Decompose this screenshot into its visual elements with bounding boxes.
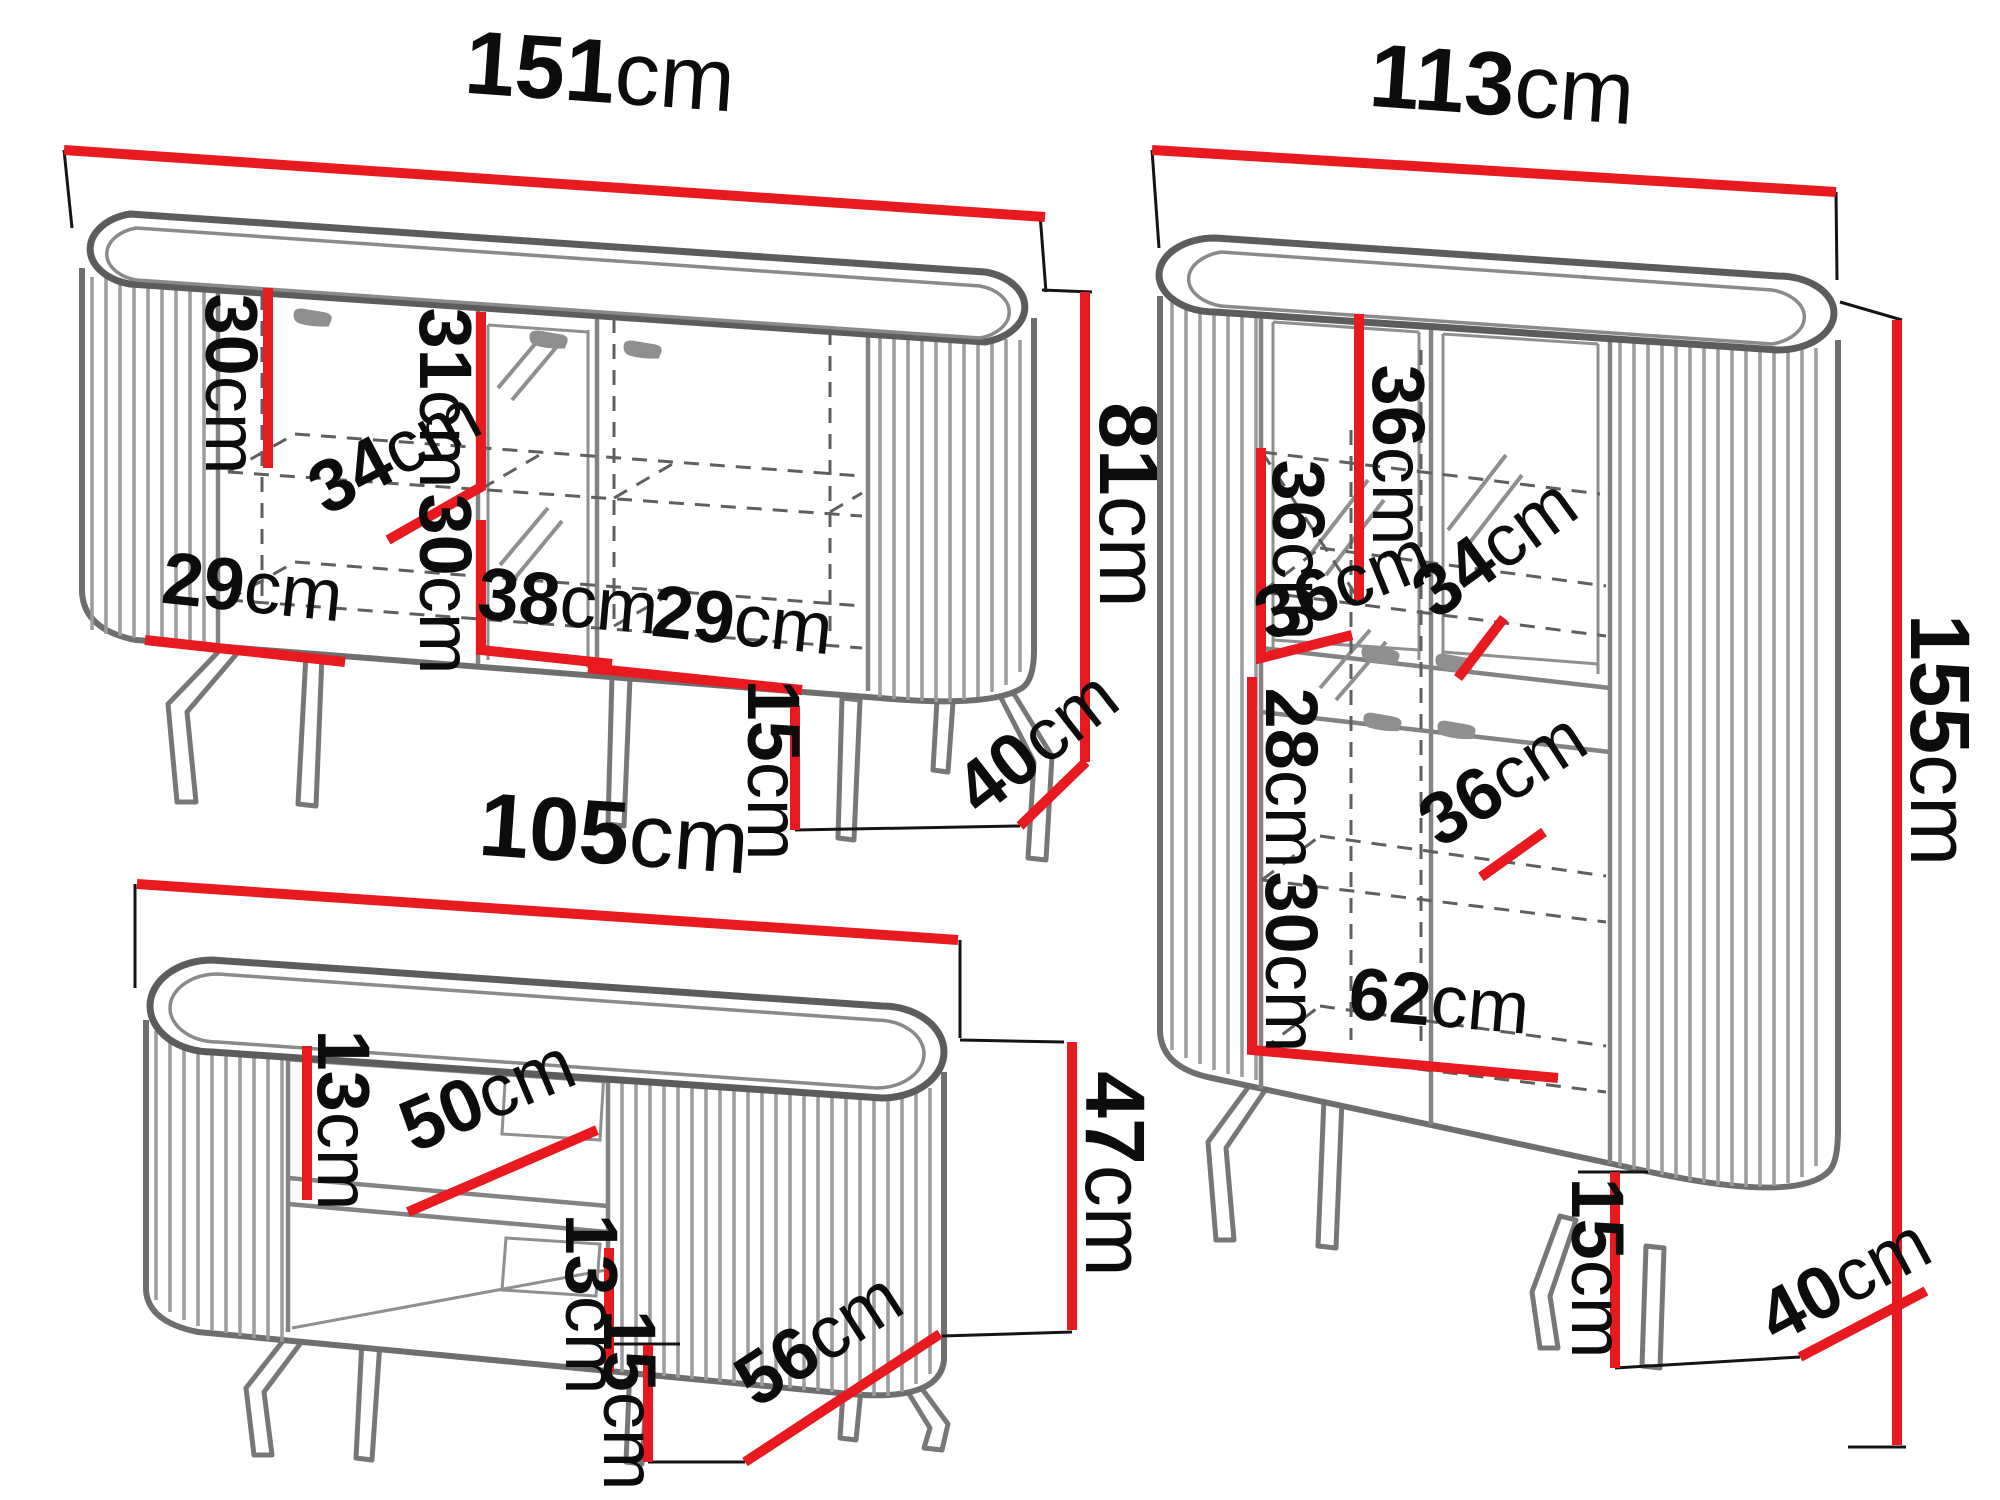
dim-line-width <box>64 150 1045 217</box>
furniture-leg <box>1642 1246 1664 1368</box>
table-width-label: 105cm <box>476 775 752 894</box>
furniture-leg <box>1318 1098 1342 1248</box>
cabinet-bottom-width-label: 62cm <box>1345 951 1533 1049</box>
cabinet-height-label: 155cm <box>1893 614 1987 866</box>
sideboard-diagram: 151cm 30cm 31cm 34cm 30cm 38cm 29cm 29cm… <box>64 13 1176 861</box>
table-height-label: 47cm <box>1068 1071 1162 1276</box>
furniture-leg <box>246 1332 306 1455</box>
sideboard-width-label: 151cm <box>462 13 738 132</box>
dim-line-width <box>137 884 958 940</box>
cabinet-leg-height-label: 15cm <box>1556 1178 1639 1359</box>
cabinet-width-label: 113cm <box>1366 26 1638 144</box>
table-top-gap-label: 13cm <box>302 1030 385 1211</box>
sideboard-mid-width-label: 38cm <box>474 551 662 649</box>
furniture-leg <box>298 654 322 806</box>
sideboard-inner-bottom-mid-label: 30cm <box>404 494 487 675</box>
furniture-leg <box>838 698 860 840</box>
dim-line-width <box>1152 150 1836 192</box>
furniture-leg <box>168 646 240 802</box>
cabinet-bottom-shelf-label: 30cm <box>1250 872 1333 1053</box>
display-cabinet-diagram: 113cm 36cm 34cm 36cm 36cm 28cm 36cm 30cm… <box>1152 26 1987 1447</box>
cabinet-lower-shelf-label: 28cm <box>1250 688 1333 869</box>
furniture-dimension-sheet: 151cm 30cm 31cm 34cm 30cm 38cm 29cm 29cm… <box>0 0 2000 1500</box>
sideboard-inner-top-left-label: 30cm <box>190 294 273 475</box>
table-leg-height-label: 15cm <box>588 1310 671 1491</box>
furniture-dimensions-diagram: 151cm 30cm 31cm 34cm 30cm 38cm 29cm 29cm… <box>0 0 2000 1500</box>
furniture-leg <box>356 1340 380 1460</box>
furniture-leg <box>1208 1082 1268 1240</box>
coffee-table-diagram: 105cm 13cm 50cm 13cm 15cm 56cm 47cm <box>135 775 1162 1491</box>
